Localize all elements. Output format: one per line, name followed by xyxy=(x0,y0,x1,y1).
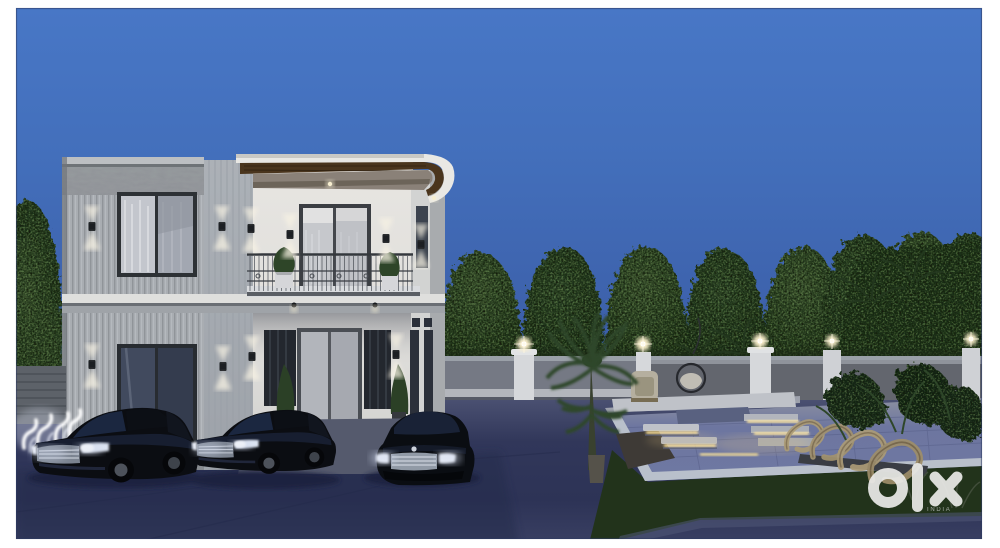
svg-text:INDIA: INDIA xyxy=(927,507,952,513)
